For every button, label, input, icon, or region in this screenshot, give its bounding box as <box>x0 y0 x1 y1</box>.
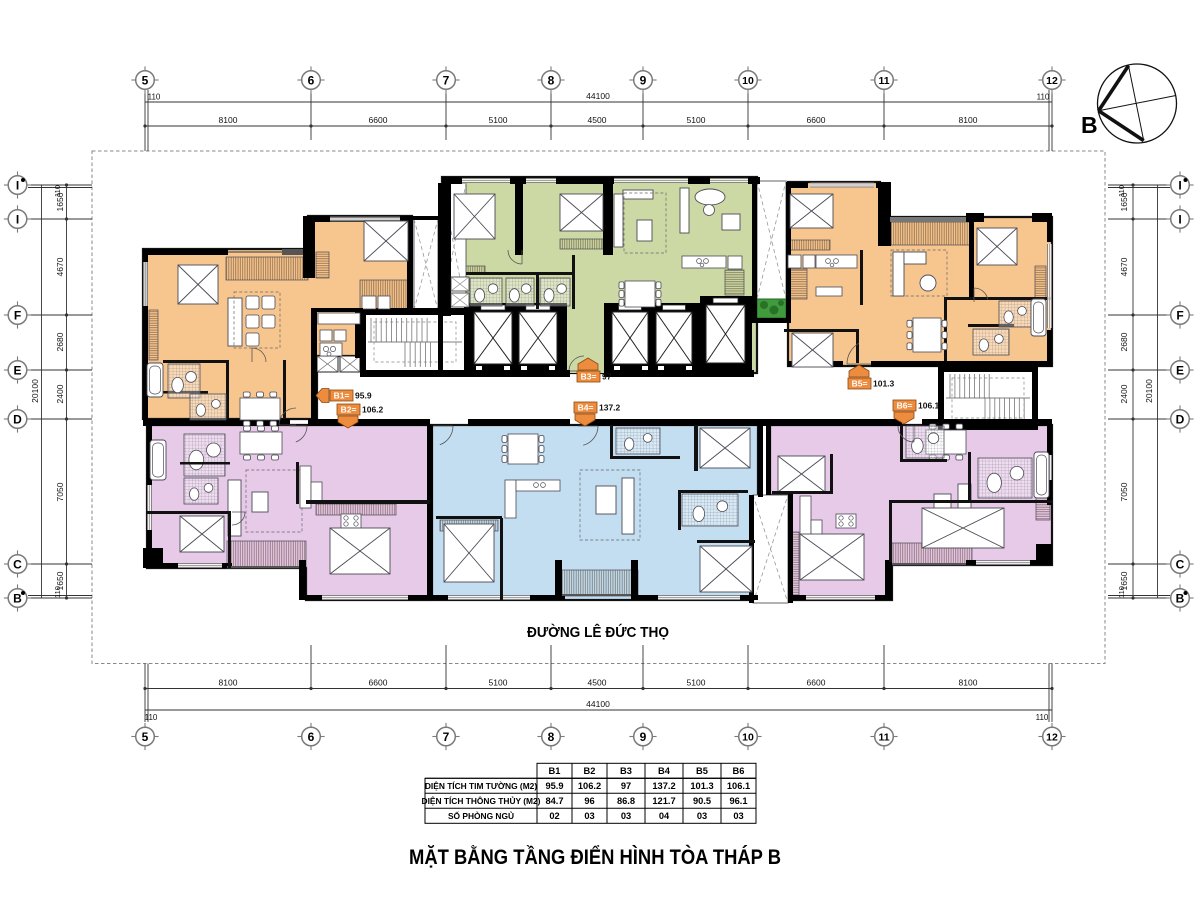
svg-text:110: 110 <box>1037 93 1050 102</box>
svg-text:B4: B4 <box>658 766 671 776</box>
svg-text:6: 6 <box>308 73 315 87</box>
svg-text:5100: 5100 <box>489 678 508 688</box>
svg-text:110: 110 <box>1117 185 1126 197</box>
svg-text:110: 110 <box>1036 713 1049 722</box>
svg-text:6600: 6600 <box>807 115 826 125</box>
svg-text:B: B <box>1081 112 1098 138</box>
svg-text:90.5: 90.5 <box>693 796 711 806</box>
svg-text:02: 02 <box>549 811 559 821</box>
svg-text:I: I <box>16 178 19 192</box>
svg-text:7: 7 <box>443 73 450 87</box>
svg-text:C: C <box>1176 557 1185 571</box>
svg-text:44100: 44100 <box>586 91 610 101</box>
svg-text:101.3: 101.3 <box>690 781 713 791</box>
svg-text:B6=: B6= <box>897 401 913 411</box>
svg-text:F: F <box>1176 308 1183 322</box>
svg-text:101.3: 101.3 <box>873 379 895 389</box>
svg-text:12: 12 <box>1046 75 1058 87</box>
svg-text:5: 5 <box>142 73 149 87</box>
svg-text:110: 110 <box>145 713 158 722</box>
svg-text:6600: 6600 <box>369 115 388 125</box>
svg-text:106.1: 106.1 <box>727 781 750 791</box>
svg-text:6600: 6600 <box>369 678 388 688</box>
svg-text:6: 6 <box>308 730 315 744</box>
svg-text:B1: B1 <box>549 766 561 776</box>
svg-text:8: 8 <box>548 730 555 744</box>
svg-text:10: 10 <box>742 731 754 743</box>
svg-text:ĐƯỜNG LÊ ĐỨC THỌ: ĐƯỜNG LÊ ĐỨC THỌ <box>527 623 669 641</box>
svg-text:9: 9 <box>640 73 647 87</box>
svg-text:20100: 20100 <box>30 379 40 403</box>
svg-text:I: I <box>1178 178 1181 192</box>
svg-text:106.1: 106.1 <box>918 401 940 411</box>
svg-text:8: 8 <box>548 73 555 87</box>
svg-text:9: 9 <box>640 730 647 744</box>
svg-text:2400: 2400 <box>55 384 65 403</box>
svg-text:110: 110 <box>148 93 161 102</box>
svg-text:5: 5 <box>142 730 149 744</box>
svg-text:121.7: 121.7 <box>652 796 675 806</box>
svg-text:E: E <box>13 363 21 377</box>
svg-text:11: 11 <box>878 75 889 87</box>
svg-text:04: 04 <box>659 811 670 821</box>
svg-text:106.2: 106.2 <box>578 781 601 791</box>
svg-text:03: 03 <box>584 811 594 821</box>
svg-text:D: D <box>13 412 22 426</box>
svg-text:106.2: 106.2 <box>362 405 384 415</box>
svg-text:110: 110 <box>53 586 62 598</box>
svg-text:110: 110 <box>1117 586 1126 598</box>
svg-text:137.2: 137.2 <box>599 403 621 413</box>
svg-text:B2: B2 <box>584 766 596 776</box>
svg-text:12: 12 <box>1046 731 1058 743</box>
svg-text:B5: B5 <box>696 766 708 776</box>
svg-text:96: 96 <box>584 796 594 806</box>
svg-text:7: 7 <box>443 730 450 744</box>
svg-text:MẶT BẰNG TẦNG ĐIỂN HÌNH TÒA TH: MẶT BẰNG TẦNG ĐIỂN HÌNH TÒA THÁP B <box>409 845 781 869</box>
svg-text:5100: 5100 <box>687 678 706 688</box>
svg-text:110: 110 <box>53 185 62 197</box>
svg-text:DIỆN TÍCH TIM TƯỜNG (M2): DIỆN TÍCH TIM TƯỜNG (M2) <box>425 780 537 791</box>
svg-text:2680: 2680 <box>1119 332 1129 351</box>
svg-text:6600: 6600 <box>807 678 826 688</box>
svg-text:5100: 5100 <box>687 115 706 125</box>
svg-text:SỐ PHÒNG NGỦ: SỐ PHÒNG NGỦ <box>448 810 514 821</box>
svg-text:I: I <box>1178 212 1181 226</box>
svg-text:84.7: 84.7 <box>545 796 563 806</box>
svg-text:E: E <box>1176 363 1184 377</box>
svg-text:4670: 4670 <box>1119 257 1129 276</box>
svg-text:B: B <box>13 591 22 605</box>
svg-text:B6: B6 <box>733 766 745 776</box>
svg-text:44100: 44100 <box>586 699 610 709</box>
svg-text:B5=: B5= <box>852 379 868 389</box>
svg-text:B3: B3 <box>620 766 632 776</box>
svg-text:2400: 2400 <box>1119 384 1129 403</box>
svg-text:97: 97 <box>621 781 631 791</box>
svg-text:I: I <box>16 212 19 226</box>
svg-text:137.2: 137.2 <box>652 781 675 791</box>
svg-text:96.1: 96.1 <box>729 796 747 806</box>
svg-text:C: C <box>13 557 22 571</box>
svg-text:4670: 4670 <box>55 257 65 276</box>
svg-text:F: F <box>14 308 21 322</box>
svg-text:8100: 8100 <box>959 115 978 125</box>
svg-text:DIỆN TÍCH THÔNG THỦY (M2): DIỆN TÍCH THÔNG THỦY (M2) <box>422 795 541 806</box>
svg-text:D: D <box>1176 412 1185 426</box>
svg-text:4500: 4500 <box>588 115 607 125</box>
svg-text:95.9: 95.9 <box>355 391 372 401</box>
svg-text:03: 03 <box>621 811 631 821</box>
svg-text:10: 10 <box>742 75 754 87</box>
svg-text:86.8: 86.8 <box>617 796 635 806</box>
svg-text:8100: 8100 <box>219 678 238 688</box>
svg-text:8100: 8100 <box>959 678 978 688</box>
svg-text:B: B <box>1176 591 1185 605</box>
svg-text:5100: 5100 <box>489 115 508 125</box>
svg-text:4500: 4500 <box>588 678 607 688</box>
svg-text:B2=: B2= <box>341 405 357 415</box>
svg-text:11: 11 <box>878 731 889 743</box>
svg-text:7050: 7050 <box>1119 482 1129 501</box>
svg-text:2680: 2680 <box>55 332 65 351</box>
svg-text:7050: 7050 <box>55 482 65 501</box>
svg-text:03: 03 <box>733 811 743 821</box>
svg-text:B3=: B3= <box>581 372 597 382</box>
svg-text:B1=: B1= <box>334 391 350 401</box>
svg-text:20100: 20100 <box>1144 379 1154 403</box>
svg-text:95.9: 95.9 <box>545 781 563 791</box>
svg-text:B4=: B4= <box>578 403 594 413</box>
svg-text:97: 97 <box>602 372 612 382</box>
svg-text:03: 03 <box>697 811 707 821</box>
svg-text:8100: 8100 <box>219 115 238 125</box>
